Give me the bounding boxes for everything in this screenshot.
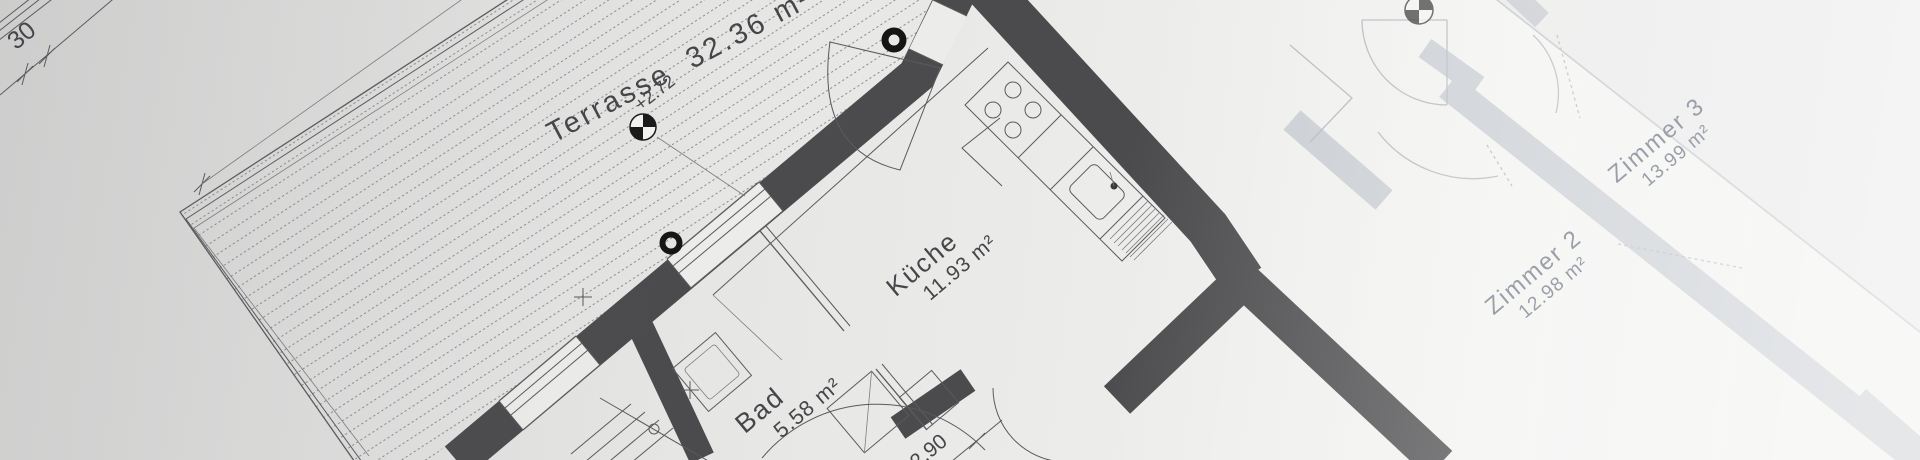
level-marker-icon <box>630 114 656 140</box>
floorplan-photo: Terrasse 32.36 m² Küche 11.93 m² Bad 5.5… <box>0 0 1920 460</box>
level-marker-icon <box>1405 0 1433 24</box>
terrace-hatch <box>180 0 1012 460</box>
